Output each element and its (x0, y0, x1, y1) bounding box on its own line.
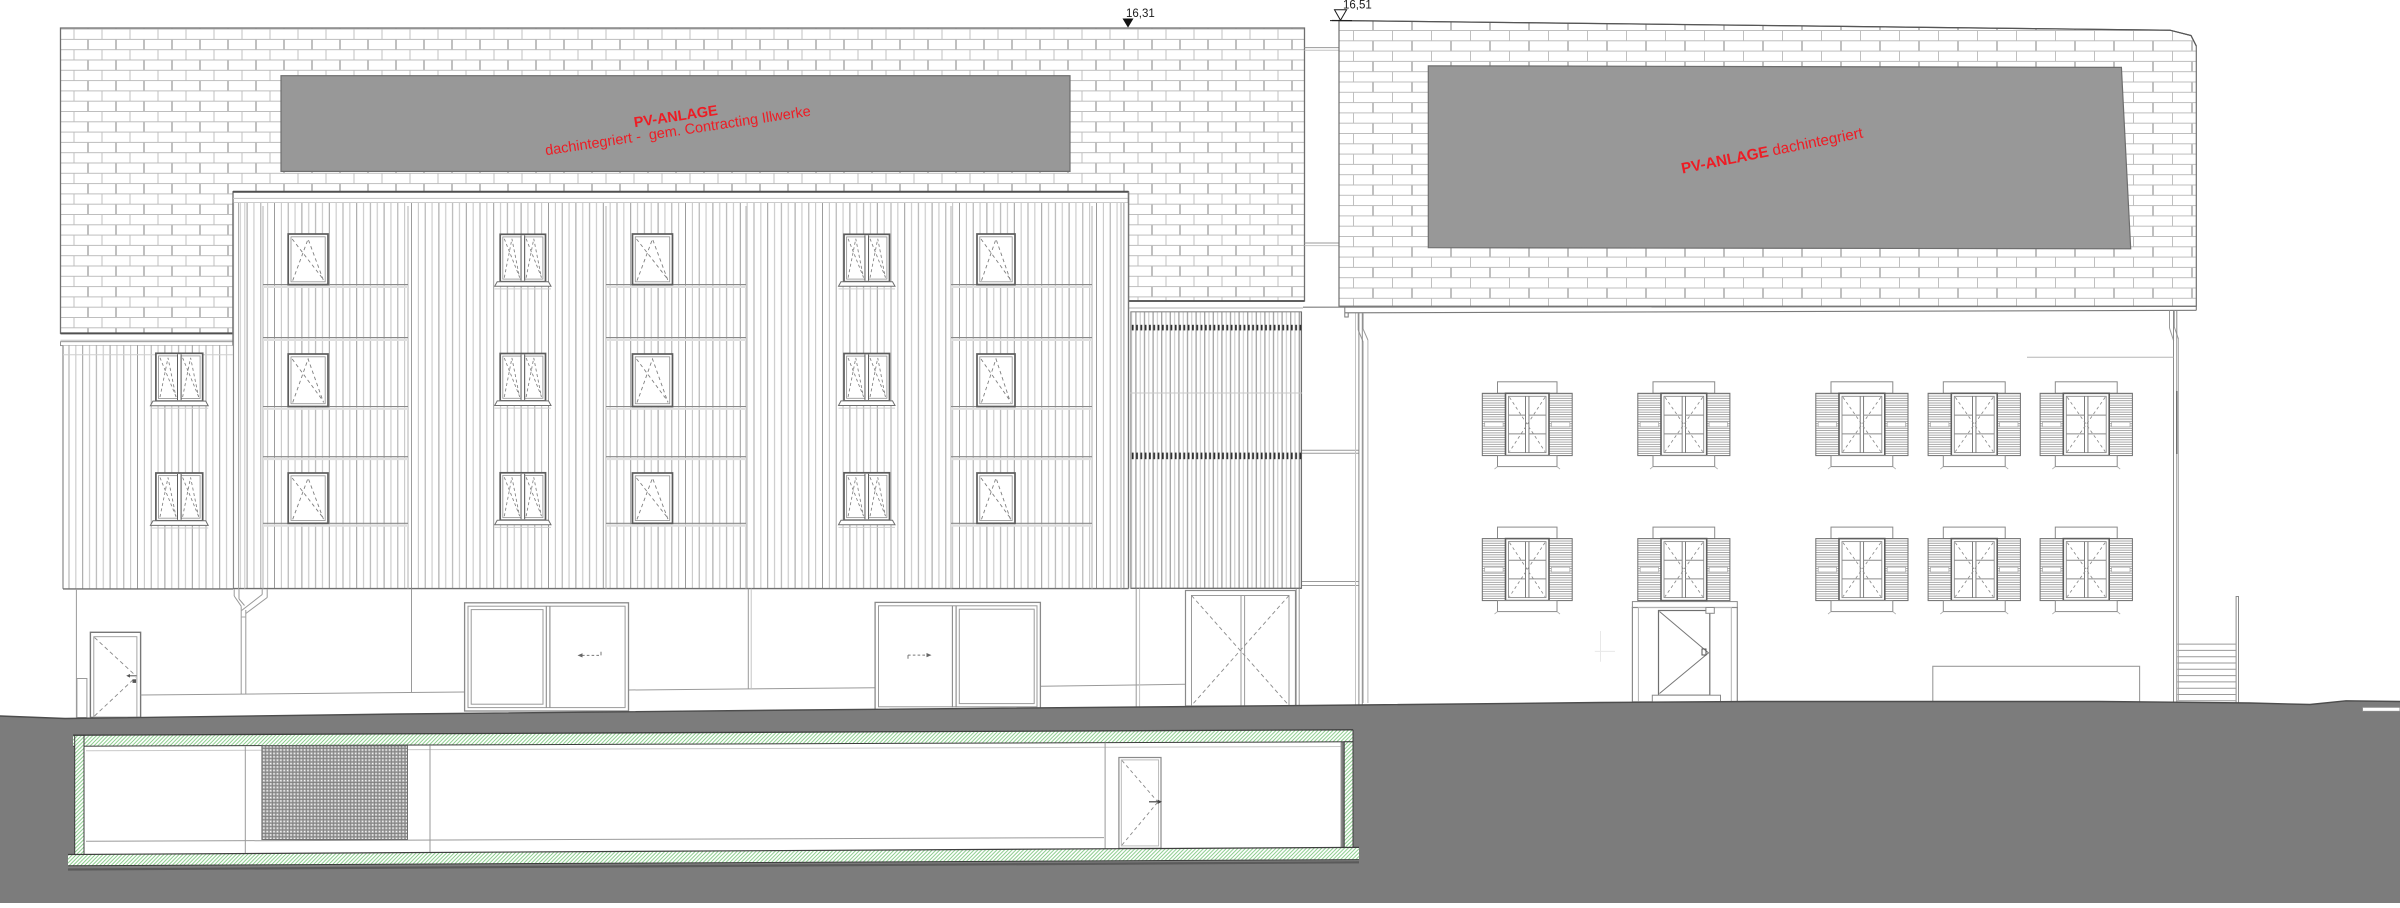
svg-text:16,51: 16,51 (1343, 0, 1372, 12)
svg-text:16,31: 16,31 (1126, 8, 1155, 20)
